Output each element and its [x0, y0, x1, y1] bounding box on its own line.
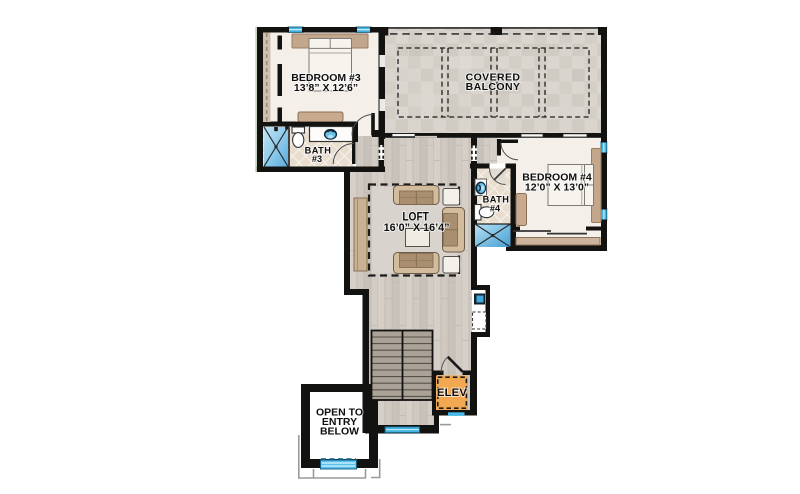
svg-text:16’0” X 16’4”: 16’0” X 16’4”	[384, 222, 450, 234]
svg-text:BELOW: BELOW	[320, 426, 359, 438]
svg-text:ELEV: ELEV	[437, 387, 468, 399]
svg-text:13’8” X 12’6”: 13’8” X 12’6”	[294, 82, 358, 94]
svg-text:12’0” X 13’0”: 12’0” X 13’0”	[525, 182, 589, 194]
svg-text:BALCONY: BALCONY	[466, 81, 521, 93]
svg-text:#4: #4	[490, 204, 501, 214]
svg-text:#3: #3	[312, 154, 322, 164]
